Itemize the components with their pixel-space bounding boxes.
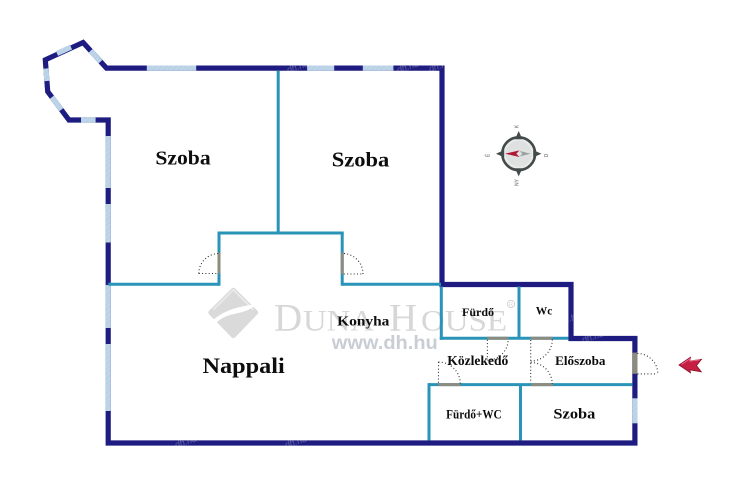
svg-text:www.dh.hu: www.dh.hu [331, 333, 438, 354]
svg-text:Szoba: Szoba [155, 147, 210, 169]
svg-text:NY: NY [515, 178, 521, 186]
svg-text:D: D [544, 153, 550, 157]
svg-text:Szoba: Szoba [332, 148, 390, 172]
svg-text:Fürdő+WC: Fürdő+WC [446, 406, 502, 421]
svg-text:Wc: Wc [536, 306, 553, 318]
svg-text:Nappali: Nappali [203, 353, 285, 378]
svg-text:Fürdő: Fürdő [462, 307, 494, 319]
svg-text:Konyha: Konyha [337, 314, 389, 329]
svg-text:D: D [274, 297, 302, 340]
svg-text:Szoba: Szoba [553, 407, 595, 423]
svg-text:Közlekedő: Közlekedő [447, 353, 508, 368]
svg-text:R: R [509, 302, 513, 308]
svg-text:Előszoba: Előszoba [555, 353, 606, 368]
svg-text:K: K [515, 124, 521, 128]
